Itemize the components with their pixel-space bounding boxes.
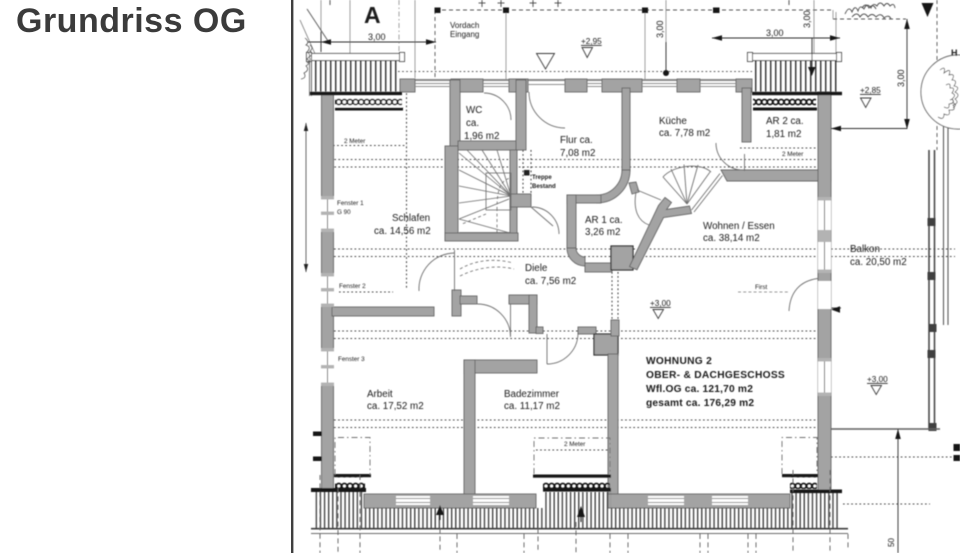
svg-text:ca. 14,56 m2: ca. 14,56 m2 <box>374 226 431 237</box>
svg-text:Küche: Küche <box>659 116 687 127</box>
svg-text:Fenster 2: Fenster 2 <box>339 283 366 290</box>
svg-text:3,00: 3,00 <box>368 32 386 42</box>
svg-text:ca. 11,17 m2: ca. 11,17 m2 <box>504 401 560 412</box>
svg-text:+3,00: +3,00 <box>867 375 888 384</box>
svg-text:G 90: G 90 <box>337 209 351 216</box>
svg-text:OBER- & DACHGESCHOSS: OBER- & DACHGESCHOSS <box>646 370 785 381</box>
svg-text:AR 2 ca.: AR 2 ca. <box>766 116 804 127</box>
svg-text:2 Meter: 2 Meter <box>344 138 365 145</box>
svg-text:WOHNUNG 2: WOHNUNG 2 <box>646 356 712 367</box>
svg-text:+3,00: +3,00 <box>650 299 671 308</box>
svg-text:ca. 20,50 m2: ca. 20,50 m2 <box>850 257 907 268</box>
svg-text:Eingang: Eingang <box>450 30 479 39</box>
svg-text:Fenster 1: Fenster 1 <box>337 200 364 207</box>
svg-text:ca. 38,14 m2: ca. 38,14 m2 <box>703 233 760 244</box>
svg-text:Bestand: Bestand <box>532 184 556 190</box>
svg-text:Balkon: Balkon <box>850 244 880 255</box>
svg-text:Wohnen / Essen: Wohnen / Essen <box>703 221 775 232</box>
svg-text:ca. 7,56 m2: ca. 7,56 m2 <box>525 276 576 287</box>
svg-text:Arbeit: Arbeit <box>367 389 393 400</box>
svg-text:Vordach: Vordach <box>450 21 479 30</box>
svg-text:AR 1 ca.: AR 1 ca. <box>585 215 623 226</box>
svg-text:Fenster 3: Fenster 3 <box>338 356 365 363</box>
svg-text:gesamt ca. 176,29 m2: gesamt ca. 176,29 m2 <box>646 398 754 409</box>
svg-text:3,00: 3,00 <box>655 20 665 38</box>
svg-text:50: 50 <box>887 538 896 547</box>
svg-text:Wfl.OG ca. 121,70 m2: Wfl.OG ca. 121,70 m2 <box>646 384 753 395</box>
svg-text:1,96 m2: 1,96 m2 <box>464 131 499 142</box>
svg-text:H: H <box>951 48 958 58</box>
svg-text:1,81 m2: 1,81 m2 <box>766 129 801 140</box>
svg-text:7,08 m2: 7,08 m2 <box>560 148 595 159</box>
svg-text:+2,85: +2,85 <box>860 86 881 95</box>
svg-text:Treppe: Treppe <box>532 175 552 181</box>
svg-text:3,00: 3,00 <box>802 10 812 28</box>
svg-text:+2,95: +2,95 <box>581 37 602 46</box>
svg-text:2 Meter: 2 Meter <box>782 151 803 158</box>
svg-text:Schlafen: Schlafen <box>392 213 430 224</box>
svg-text:2 Meter: 2 Meter <box>564 441 585 448</box>
svg-text:3,26 m2: 3,26 m2 <box>585 227 620 238</box>
svg-text:A: A <box>364 2 381 28</box>
svg-text:First: First <box>755 284 767 291</box>
svg-text:ca. 17,52 m2: ca. 17,52 m2 <box>367 401 424 412</box>
svg-text:Flur ca.: Flur ca. <box>560 135 593 146</box>
svg-text:3,00: 3,00 <box>766 28 784 38</box>
svg-text:ca. 7,78 m2: ca. 7,78 m2 <box>659 128 710 139</box>
svg-text:Diele: Diele <box>525 263 548 274</box>
svg-text:WC: WC <box>466 105 482 116</box>
svg-text:Badezimmer: Badezimmer <box>504 389 560 400</box>
svg-text:3,00: 3,00 <box>896 69 906 87</box>
svg-text:ca.: ca. <box>466 118 479 129</box>
